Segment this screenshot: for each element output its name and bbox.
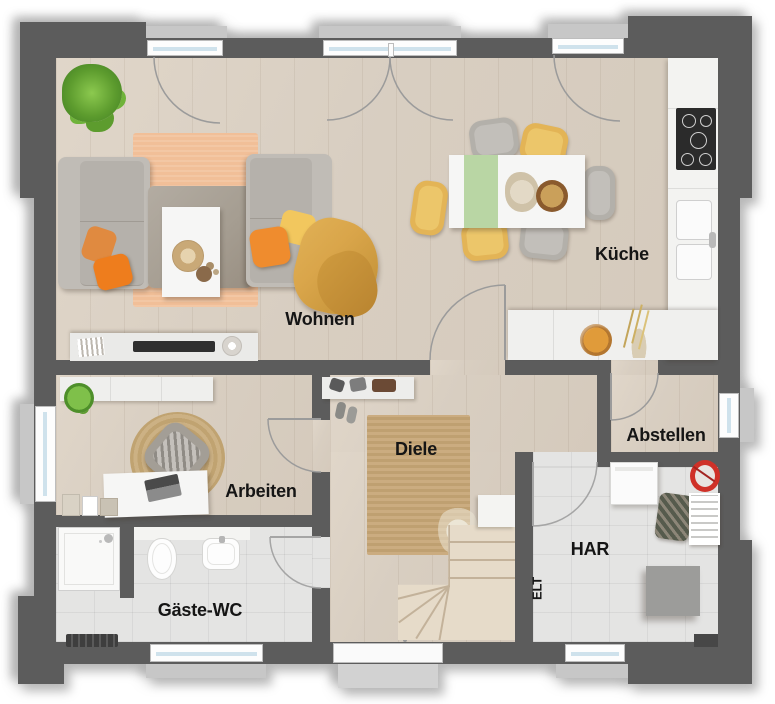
room-label-gaeste-wc: Gäste-WC [130, 600, 270, 621]
room-label-arbeiten: Arbeiten [191, 481, 331, 502]
room-label-har: HAR [520, 539, 660, 560]
floor-plan: Wohnen Küche Arbeiten Diele Gäste-WC Abs… [0, 0, 775, 704]
room-label-wohnen: Wohnen [250, 309, 390, 330]
terrace-door-arc-1 [154, 57, 220, 123]
door-arcs-layer [0, 0, 775, 704]
door-arc-wohnen-diele [430, 285, 505, 360]
door-arc-arbeiten [268, 419, 321, 472]
terrace-door-arc-2-left [327, 57, 390, 120]
room-label-kueche: Küche [552, 244, 692, 265]
door-arc-har [533, 462, 597, 526]
room-label-abstellen: Abstellen [596, 425, 736, 446]
door-arc-wc [270, 537, 321, 588]
room-label-diele: Diele [346, 439, 486, 460]
door-arc-abstellen [611, 373, 658, 420]
terrace-door-arc-2-right [390, 57, 453, 120]
terrace-door-arc-3 [554, 55, 620, 121]
room-label-elt: ELT [530, 569, 545, 609]
